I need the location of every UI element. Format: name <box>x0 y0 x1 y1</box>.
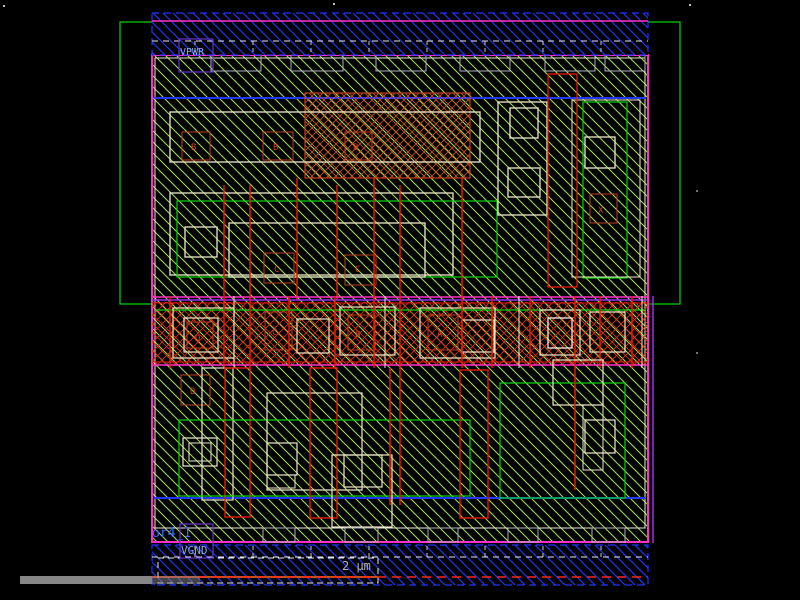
contact-letter: C <box>274 265 279 275</box>
power-rail-top[interactable] <box>152 13 648 55</box>
contact-letter: C <box>272 328 277 338</box>
contact-letter: C <box>355 265 360 275</box>
contact-letter: B <box>191 143 196 153</box>
layout-editor-screen: B B B C C X <box>0 0 800 600</box>
layout-canvas[interactable]: B B B C C X <box>0 0 800 600</box>
vgnd-label: VGND <box>181 544 208 557</box>
contact-letter: D <box>190 387 195 397</box>
contact-letter: X <box>598 206 604 216</box>
vpwr-label: VPWR <box>180 47 205 58</box>
cell-name-label: or4_1 <box>152 526 191 541</box>
contact-letter: B <box>355 330 360 340</box>
horizontal-scrollbar-thumb[interactable] <box>20 576 200 584</box>
scale-label: 2 μm <box>342 559 371 573</box>
gate-contact-band: D C B A <box>152 296 648 368</box>
contact-letter: A <box>437 330 443 340</box>
contact-letter: B <box>353 143 358 153</box>
ground-rail-bottom[interactable] <box>152 545 648 585</box>
contact-letter: D <box>195 334 200 344</box>
contact-letter: B <box>273 143 278 153</box>
